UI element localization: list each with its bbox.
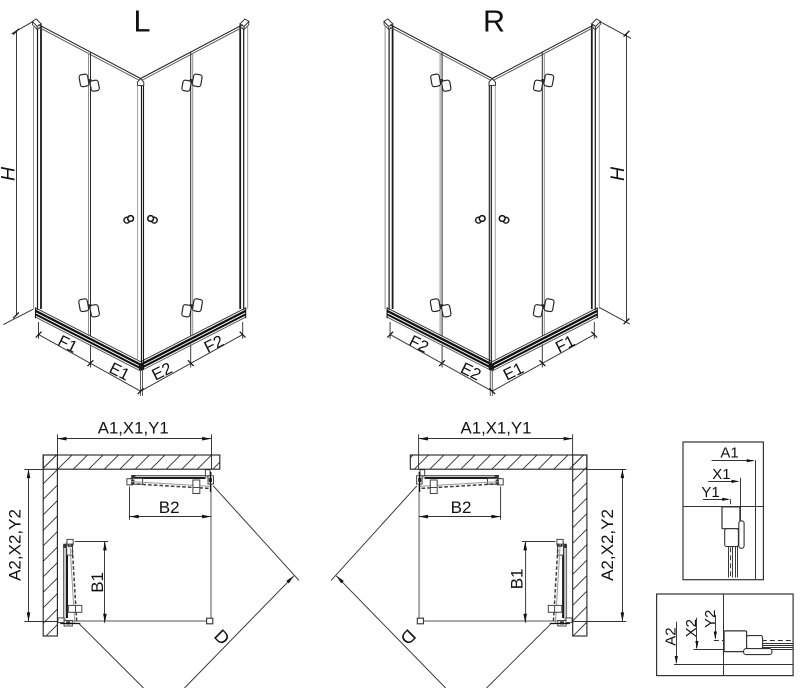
svg-text:A2,X2,Y2: A2,X2,Y2 xyxy=(6,509,25,581)
svg-text:B1: B1 xyxy=(88,572,107,593)
svg-text:Y2: Y2 xyxy=(702,610,719,628)
svg-text:X2: X2 xyxy=(683,619,700,637)
svg-text:A2,X2,Y2: A2,X2,Y2 xyxy=(598,509,617,581)
svg-text:A1: A1 xyxy=(720,445,738,462)
svg-text:X1: X1 xyxy=(712,466,730,483)
svg-text:B2: B2 xyxy=(451,498,472,517)
svg-text:B1: B1 xyxy=(507,569,526,590)
svg-text:Y1: Y1 xyxy=(701,484,719,501)
svg-text:H: H xyxy=(607,166,629,181)
svg-text:L: L xyxy=(134,5,151,39)
svg-text:B2: B2 xyxy=(159,498,180,517)
svg-text:R: R xyxy=(483,5,505,39)
svg-text:A2: A2 xyxy=(663,627,680,645)
svg-text:A1,X1,Y1: A1,X1,Y1 xyxy=(98,419,169,438)
svg-text:A1,X1,Y1: A1,X1,Y1 xyxy=(461,419,532,438)
svg-text:H: H xyxy=(0,166,20,181)
